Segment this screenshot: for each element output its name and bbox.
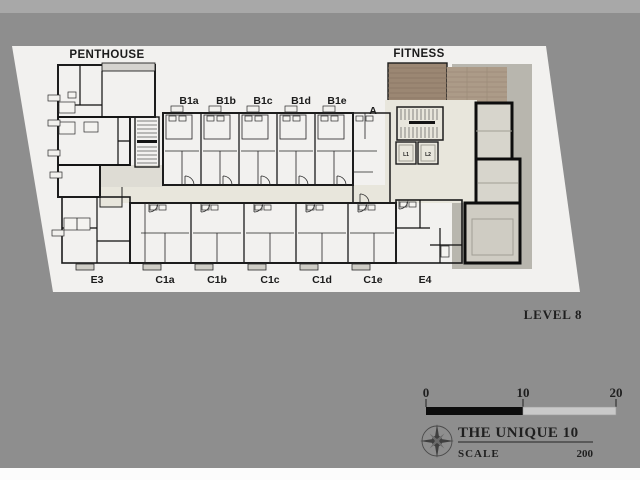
scale-tick-10: 10: [517, 385, 530, 400]
unit-label-a: A: [369, 105, 377, 117]
elevator-2-label: L2: [425, 152, 431, 158]
unit-label-b1c: B1c: [253, 95, 272, 107]
unit-label-b1b: B1b: [216, 95, 236, 107]
scale-value: 200: [577, 448, 594, 460]
entry-hall: [100, 165, 163, 187]
project-title: THE UNIQUE 10: [458, 425, 579, 441]
scale-bar-empty-segment: [523, 407, 616, 415]
scale-tick-20: 20: [610, 385, 623, 400]
penthouse-fixture: [59, 122, 75, 134]
unit-label-b1e: B1e: [327, 95, 346, 107]
background-top-strip: [0, 0, 640, 13]
penthouse-fixture: [68, 92, 76, 98]
unit-label-c1a: C1a: [155, 274, 174, 286]
penthouse-fixture: [59, 102, 75, 113]
unit-label-e4: E4: [419, 274, 432, 286]
unit-label-e3: E3: [91, 274, 104, 286]
level-annotation: LEVEL 8: [524, 307, 583, 322]
penthouse-label: PENTHOUSE: [69, 49, 144, 61]
floor-plan-sheet: L1 L2 PENTHOUSE FITNESS B1a B1b B1c B1d …: [0, 0, 640, 480]
penthouse-fixture: [84, 122, 98, 132]
floor-plan-drawing: L1 L2 PENTHOUSE FITNESS B1a B1b B1c B1d …: [0, 0, 640, 480]
background-bottom-strip: [0, 468, 640, 480]
elevator-1-label: L1: [403, 152, 409, 158]
fitness-label: FITNESS: [393, 48, 444, 60]
unit-label-c1b: C1b: [207, 274, 227, 286]
scale-label: SCALE: [458, 448, 500, 460]
scale-bar-filled-segment: [426, 407, 523, 415]
unit-label-b1a: B1a: [179, 95, 198, 107]
penthouse-roof-ledge: [102, 63, 155, 71]
unit-label-b1d: B1d: [291, 95, 311, 107]
scale-tick-0: 0: [423, 385, 430, 400]
unit-label-c1c: C1c: [260, 274, 279, 286]
unit-label-c1e: C1e: [363, 274, 382, 286]
unit-label-c1d: C1d: [312, 274, 332, 286]
